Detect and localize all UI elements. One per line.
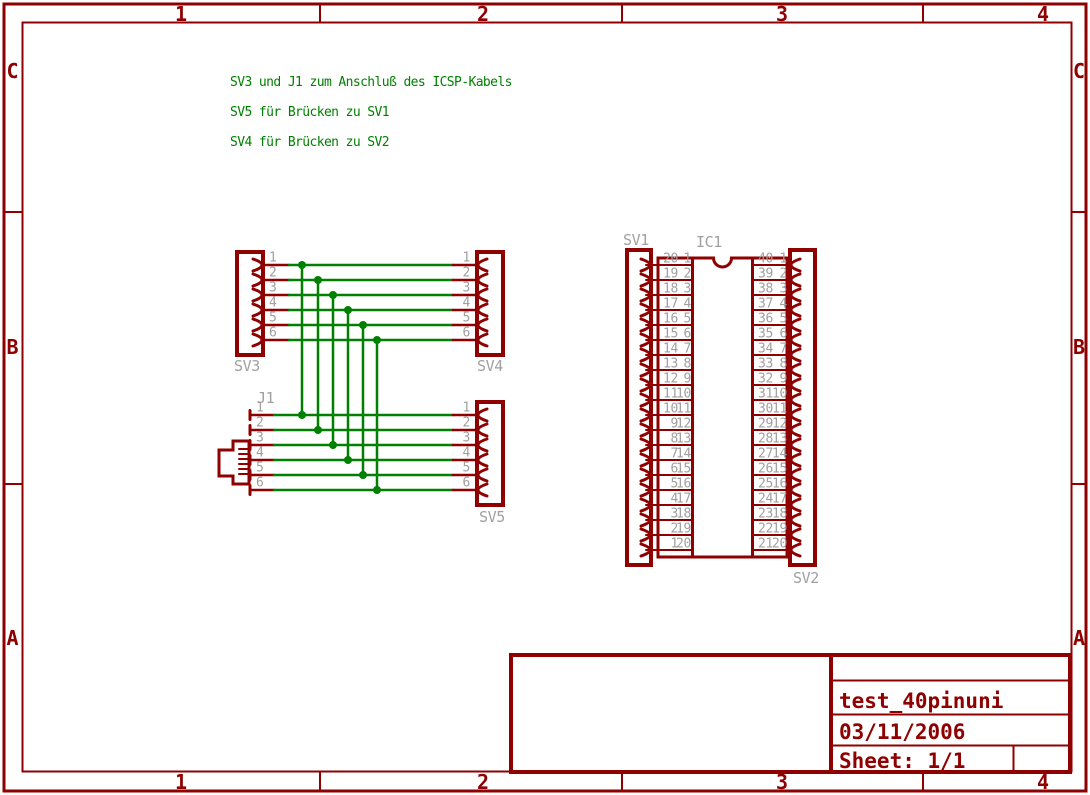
sv2-pin-number: 7 — [779, 342, 787, 357]
sv4-pin-number: 3 — [462, 281, 470, 296]
frame-col-1-top: 1 — [175, 2, 187, 26]
ic1-pin-number: 11 — [676, 402, 691, 417]
junction-dot[interactable] — [373, 336, 381, 344]
sv1-pin-number: 19 — [663, 267, 678, 282]
j1-pin-number: 3 — [256, 431, 264, 446]
sv3-pin-number: 3 — [269, 281, 277, 296]
j1-pin-number: 5 — [256, 461, 264, 476]
ic1-pin-number: 7 — [683, 342, 691, 357]
junction-dot[interactable] — [359, 321, 367, 329]
ic1-pin-number: 13 — [676, 432, 691, 447]
sv1-pin-number: 18 — [663, 282, 678, 297]
sv5-pin-number: 5 — [462, 461, 470, 476]
female-pin-icon — [791, 499, 800, 511]
frame-col-2-bottom: 2 — [477, 770, 489, 794]
sv5-pin-number: 4 — [462, 446, 470, 461]
ic1-pin-number: 4 — [683, 297, 691, 312]
ic1-pin-number: 14 — [676, 447, 692, 462]
frame-row-b-left: B — [6, 335, 18, 359]
sv2-pin-number: 18 — [772, 507, 787, 522]
ic1-pin-number: 28 — [758, 432, 773, 447]
female-pin-icon — [253, 259, 262, 271]
sv3-pin-number: 1 — [269, 251, 277, 266]
connector-sv2-label: SV2 — [793, 569, 819, 587]
components: SV3 SV4 SV5 J1 SV1 SV2 IC1 — [219, 231, 819, 587]
junction-dot[interactable] — [298, 261, 306, 269]
sv4-pin-number: 6 — [462, 326, 470, 341]
sv2-pin-number: 12 — [772, 417, 787, 432]
ic1-pin-number: 3 — [683, 282, 691, 297]
connector-sv3-label: SV3 — [234, 357, 260, 375]
female-pin-icon — [478, 439, 487, 451]
female-pin-icon — [253, 274, 262, 286]
ic1-pin-number: 33 — [758, 357, 773, 372]
female-pin-icon — [791, 304, 800, 316]
sv5-pin-number: 1 — [462, 401, 470, 416]
female-pin-icon — [478, 469, 487, 481]
sv3-pin-number: 4 — [269, 296, 277, 311]
ic1-pin-number: 31 — [758, 387, 773, 402]
j1-pin-number: 4 — [256, 446, 264, 461]
ic1-pin-number: 29 — [758, 417, 773, 432]
ic1-pin-number: 9 — [683, 372, 691, 387]
ic1-pin-number: 40 — [758, 252, 773, 267]
female-pin-icon — [478, 304, 487, 316]
sv1-pin-number: 15 — [663, 327, 678, 342]
sv2-pin-number: 2 — [779, 267, 787, 282]
sv2-pin-number: 6 — [779, 327, 787, 342]
sv4-pin-number: 1 — [462, 251, 470, 266]
frame-col-4-top: 4 — [1037, 2, 1049, 26]
ic1-pin-number: 38 — [758, 282, 773, 297]
frame-col-3-top: 3 — [776, 2, 788, 26]
female-pin-icon — [791, 469, 800, 481]
female-pin-icon — [791, 484, 800, 496]
sv1-pin-number: 13 — [663, 357, 678, 372]
frame-row-c-right: C — [1073, 59, 1085, 83]
titleblock-title: test_40pinuni — [839, 689, 1003, 713]
sv1-pin-number: 17 — [663, 297, 678, 312]
sv5-pin-number: 6 — [462, 476, 470, 491]
female-pin-icon — [478, 334, 487, 346]
sv4-pin-number: 4 — [462, 296, 470, 311]
female-pin-icon — [253, 334, 262, 346]
sv3-pin-number: 2 — [269, 266, 277, 281]
frame-row-b-right: B — [1073, 335, 1085, 359]
female-pin-icon — [791, 289, 800, 301]
schematic-canvas: 1 2 3 4 1 2 3 4 C B A C B A test_40pinun… — [0, 0, 1090, 795]
female-pin-icon — [791, 529, 800, 541]
female-pin-icon — [791, 319, 800, 331]
sv2-pin-number: 19 — [772, 522, 787, 537]
female-pin-icon — [253, 319, 262, 331]
connector-sv4-label: SV4 — [477, 357, 503, 375]
female-pin-icon — [791, 424, 800, 436]
sv2-pin-number: 10 — [772, 387, 787, 402]
sv4-pin-number: 2 — [462, 266, 470, 281]
ic1-pin-number: 27 — [758, 447, 773, 462]
titleblock-sheet: Sheet: 1/1 — [839, 749, 965, 773]
sv1-pin-number: 16 — [663, 312, 678, 327]
sv3-pin-number: 6 — [269, 326, 277, 341]
ic1-pin-number: 26 — [758, 462, 773, 477]
ic1-pin-number: 39 — [758, 267, 773, 282]
sheet-frame: 1 2 3 4 1 2 3 4 C B A C B A — [4, 2, 1086, 794]
sv2-pin-number: 5 — [779, 312, 787, 327]
sv2-pin-number: 20 — [772, 537, 787, 552]
female-pin-icon — [791, 274, 800, 286]
female-pin-icon — [478, 319, 487, 331]
female-pin-icon — [791, 379, 800, 391]
ic1-pin-number: 12 — [676, 417, 691, 432]
junction-dot[interactable] — [329, 291, 337, 299]
sv1-pin-number: 20 — [663, 252, 678, 267]
sv5-pin-number: 2 — [462, 416, 470, 431]
ic1-pin-number: 19 — [676, 522, 691, 537]
annotation-notes[interactable]: SV3 und J1 zum Anschluß des ICSP-Kabels … — [230, 75, 512, 150]
ic1-pin-number: 34 — [758, 342, 774, 357]
frame-col-2-top: 2 — [477, 2, 489, 26]
note-sv4[interactable]: SV4 für Brücken zu SV2 — [230, 135, 389, 150]
sv2-pin-number: 9 — [779, 372, 787, 387]
note-sv5[interactable]: SV5 für Brücken zu SV1 — [230, 105, 389, 120]
sv2-pin-number: 16 — [772, 477, 787, 492]
female-pin-icon — [478, 484, 487, 496]
ic1-pin-number: 35 — [758, 327, 773, 342]
sv2-pin-number: 11 — [772, 402, 787, 417]
female-pin-icon — [253, 289, 262, 301]
sv4-pin-number: 5 — [462, 311, 470, 326]
ic1-pin-number: 15 — [676, 462, 691, 477]
female-pin-icon — [478, 424, 487, 436]
sv2-pin-number: 8 — [779, 357, 787, 372]
female-pin-icon — [791, 409, 800, 421]
j1-pin-number: 1 — [256, 401, 264, 416]
frame-row-a-right: A — [1073, 626, 1085, 650]
female-pin-icon — [478, 274, 487, 286]
title-block: test_40pinuni 03/11/2006 Sheet: 1/1 — [511, 655, 1070, 773]
ic1-pin-number: 6 — [683, 327, 691, 342]
ic1-pin-number: 21 — [758, 537, 773, 552]
frame-row-c-left: C — [6, 59, 18, 83]
female-pin-icon — [791, 259, 800, 271]
female-pin-icon — [253, 304, 262, 316]
ic1-pin-number: 10 — [676, 387, 691, 402]
female-pin-icon — [478, 289, 487, 301]
connector-j1-body[interactable] — [219, 441, 249, 484]
ic1-pin-number: 25 — [758, 477, 773, 492]
ic1-pin-number: 17 — [676, 492, 691, 507]
female-pin-icon — [791, 514, 800, 526]
ic1-pin-number: 36 — [758, 312, 773, 327]
ic1-pin-number: 30 — [758, 402, 773, 417]
female-pin-icon — [791, 364, 800, 376]
ic1-pin-number: 5 — [683, 312, 691, 327]
sv2-pin-number: 13 — [772, 432, 787, 447]
j1-pin-number: 6 — [256, 476, 264, 491]
sv1-pin-number: 14 — [663, 342, 679, 357]
ic1-pin-number: 2 — [683, 267, 691, 282]
sv2-pin-number: 17 — [772, 492, 787, 507]
titleblock-date: 03/11/2006 — [839, 720, 965, 744]
ic1-label: IC1 — [696, 233, 722, 251]
ic1-pin-number: 37 — [758, 297, 773, 312]
ic1-pin-number: 23 — [758, 507, 773, 522]
female-pin-icon — [791, 439, 800, 451]
female-pin-icon — [791, 334, 800, 346]
ic1-pin-number: 32 — [758, 372, 773, 387]
ic1-pin-number: 20 — [676, 537, 691, 552]
female-pin-icon — [478, 454, 487, 466]
ic1-pin-number: 16 — [676, 477, 691, 492]
female-pin-icon — [791, 544, 800, 556]
j1-pin-number: 2 — [256, 416, 264, 431]
ic1-pin-number: 18 — [676, 507, 691, 522]
junction-dot[interactable] — [314, 276, 322, 284]
junction-dot[interactable] — [344, 306, 352, 314]
note-icsp[interactable]: SV3 und J1 zum Anschluß des ICSP-Kabels — [230, 75, 512, 90]
female-pin-icon — [791, 394, 800, 406]
ic1-pin-number: 8 — [683, 357, 691, 372]
female-pin-icon — [791, 349, 800, 361]
ic1-pin-number: 22 — [758, 522, 773, 537]
ic1-pin-number: 1 — [683, 252, 691, 267]
sv2-pin-number: 3 — [779, 282, 787, 297]
frame-row-a-left: A — [6, 626, 18, 650]
frame-col-1-bottom: 1 — [175, 770, 187, 794]
sv2-pin-number: 4 — [779, 297, 787, 312]
sv3-pin-number: 5 — [269, 311, 277, 326]
sv2-pin-number: 1 — [779, 252, 787, 267]
sv1-pin-number: 12 — [663, 372, 678, 387]
connector-sv5-label: SV5 — [479, 508, 505, 526]
female-pin-icon — [478, 409, 487, 421]
sv5-pin-number: 3 — [462, 431, 470, 446]
female-pin-icon — [478, 259, 487, 271]
female-pin-icon — [791, 454, 800, 466]
sv2-pin-number: 14 — [772, 447, 788, 462]
connector-sv1-label: SV1 — [623, 231, 649, 249]
sv2-pin-number: 15 — [772, 462, 787, 477]
